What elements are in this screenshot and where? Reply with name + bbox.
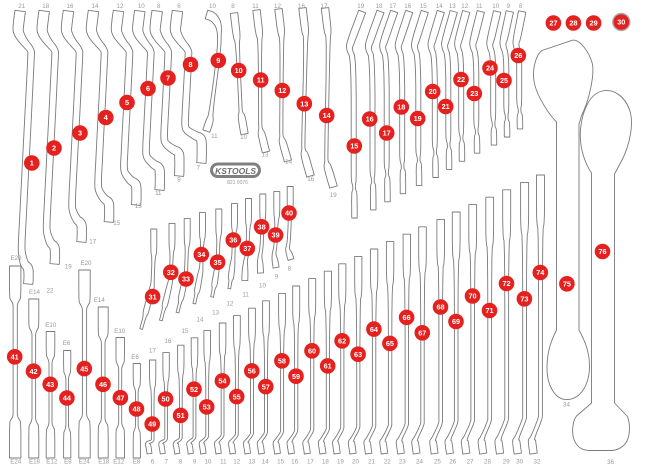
svg-text:19: 19: [65, 263, 72, 270]
svg-text:E6: E6: [131, 354, 139, 361]
svg-text:51: 51: [177, 411, 185, 420]
svg-text:58: 58: [278, 357, 286, 366]
svg-text:6: 6: [146, 84, 150, 93]
svg-text:53: 53: [203, 403, 211, 412]
svg-text:7: 7: [197, 164, 201, 171]
svg-text:12: 12: [278, 86, 286, 95]
svg-text:8: 8: [179, 458, 183, 465]
svg-text:28: 28: [569, 19, 577, 28]
svg-text:15: 15: [420, 3, 427, 10]
svg-text:19: 19: [337, 458, 344, 465]
svg-text:13: 13: [212, 310, 219, 317]
svg-text:25: 25: [500, 76, 508, 85]
svg-text:46: 46: [99, 380, 107, 389]
svg-text:8: 8: [519, 3, 523, 10]
svg-text:9: 9: [177, 177, 181, 184]
svg-text:10: 10: [492, 3, 499, 10]
svg-text:24: 24: [416, 458, 423, 465]
svg-text:8: 8: [288, 266, 292, 273]
svg-text:14: 14: [262, 458, 269, 465]
svg-text:40: 40: [285, 209, 293, 218]
svg-text:54: 54: [218, 377, 227, 386]
svg-text:49: 49: [148, 420, 156, 429]
svg-text:61: 61: [324, 362, 332, 371]
svg-text:1: 1: [30, 159, 34, 168]
svg-text:E12: E12: [46, 458, 58, 465]
svg-text:E8: E8: [133, 458, 141, 465]
svg-text:19: 19: [414, 114, 422, 123]
svg-text:68: 68: [436, 303, 444, 312]
svg-text:8: 8: [157, 3, 161, 10]
svg-text:71: 71: [485, 306, 493, 315]
svg-text:17: 17: [89, 238, 96, 245]
svg-text:821 0076: 821 0076: [227, 180, 248, 186]
svg-text:11: 11: [252, 3, 259, 10]
svg-text:24: 24: [486, 64, 495, 73]
svg-text:16: 16: [366, 115, 374, 124]
svg-text:14: 14: [92, 3, 99, 10]
svg-text:63: 63: [354, 350, 362, 359]
svg-text:19: 19: [330, 192, 337, 199]
svg-text:48: 48: [132, 405, 140, 414]
svg-text:16: 16: [165, 338, 172, 345]
svg-text:17: 17: [149, 348, 156, 355]
svg-text:10: 10: [205, 458, 212, 465]
svg-text:35: 35: [214, 258, 222, 267]
svg-text:KSTOOLS: KSTOOLS: [215, 166, 256, 176]
svg-text:13: 13: [248, 458, 255, 465]
svg-text:17: 17: [307, 458, 314, 465]
svg-text:62: 62: [338, 337, 346, 346]
svg-text:27: 27: [549, 19, 557, 28]
svg-text:14: 14: [285, 159, 292, 166]
svg-text:E24: E24: [79, 458, 91, 465]
svg-text:12: 12: [274, 3, 281, 10]
svg-text:7: 7: [166, 74, 170, 83]
svg-text:65: 65: [386, 339, 394, 348]
svg-text:36: 36: [607, 459, 614, 466]
svg-text:18: 18: [42, 3, 49, 10]
svg-text:20: 20: [429, 87, 437, 96]
svg-text:37: 37: [243, 244, 251, 253]
svg-text:20: 20: [352, 458, 359, 465]
svg-text:33: 33: [182, 275, 190, 284]
svg-text:26: 26: [514, 51, 522, 60]
svg-text:76: 76: [598, 247, 606, 256]
svg-text:11: 11: [242, 292, 249, 299]
svg-text:70: 70: [468, 292, 476, 301]
svg-text:73: 73: [520, 295, 528, 304]
svg-text:12: 12: [117, 3, 124, 10]
svg-text:17: 17: [321, 3, 328, 10]
svg-text:11: 11: [211, 133, 218, 140]
svg-text:16: 16: [404, 3, 411, 10]
svg-text:21: 21: [442, 102, 450, 111]
svg-text:69: 69: [452, 317, 460, 326]
svg-text:22: 22: [457, 75, 465, 84]
svg-text:31: 31: [149, 292, 157, 301]
svg-text:9: 9: [193, 458, 197, 465]
svg-text:10: 10: [209, 3, 216, 10]
svg-text:66: 66: [403, 313, 411, 322]
svg-text:55: 55: [233, 392, 241, 401]
svg-text:3: 3: [78, 129, 82, 138]
svg-text:45: 45: [80, 364, 88, 373]
svg-text:E10: E10: [45, 322, 57, 329]
svg-text:E10: E10: [114, 328, 126, 335]
svg-text:27: 27: [467, 458, 474, 465]
svg-text:64: 64: [370, 325, 379, 334]
svg-text:21: 21: [368, 458, 375, 465]
svg-text:25: 25: [434, 458, 441, 465]
svg-text:11: 11: [476, 3, 483, 10]
svg-text:38: 38: [258, 223, 266, 232]
svg-text:26: 26: [449, 458, 456, 465]
svg-text:57: 57: [262, 382, 270, 391]
svg-text:18: 18: [397, 103, 405, 112]
svg-text:30: 30: [617, 18, 625, 27]
svg-text:E20: E20: [10, 255, 22, 262]
svg-text:13: 13: [262, 151, 269, 158]
svg-text:10: 10: [259, 283, 266, 290]
svg-text:6: 6: [151, 458, 155, 465]
svg-text:15: 15: [182, 328, 189, 335]
svg-text:18: 18: [322, 458, 329, 465]
svg-text:16: 16: [307, 176, 314, 183]
svg-text:18: 18: [376, 3, 383, 10]
svg-text:56: 56: [248, 367, 256, 376]
svg-text:16: 16: [67, 3, 74, 10]
svg-text:72: 72: [502, 279, 510, 288]
svg-text:16: 16: [298, 3, 305, 10]
svg-text:22: 22: [384, 458, 391, 465]
svg-text:E18: E18: [98, 458, 110, 465]
svg-text:23: 23: [470, 89, 478, 98]
svg-text:43: 43: [46, 380, 54, 389]
svg-text:17: 17: [389, 3, 396, 10]
svg-text:12: 12: [461, 3, 468, 10]
svg-text:52: 52: [190, 385, 198, 394]
svg-text:14: 14: [323, 111, 332, 120]
svg-text:10: 10: [240, 134, 247, 141]
svg-text:E6: E6: [63, 340, 71, 347]
svg-text:8: 8: [188, 60, 192, 69]
svg-text:39: 39: [272, 231, 280, 240]
svg-text:59: 59: [292, 372, 300, 381]
svg-text:41: 41: [11, 353, 19, 362]
svg-text:E18: E18: [29, 458, 41, 465]
svg-text:60: 60: [308, 347, 316, 356]
svg-text:8: 8: [231, 3, 235, 10]
svg-text:13: 13: [300, 99, 308, 108]
svg-text:13: 13: [449, 3, 456, 10]
svg-text:36: 36: [229, 236, 237, 245]
svg-text:16: 16: [291, 458, 298, 465]
svg-text:9: 9: [216, 56, 220, 65]
svg-text:E14: E14: [29, 289, 41, 296]
svg-text:11: 11: [257, 76, 265, 85]
svg-text:47: 47: [116, 393, 124, 402]
svg-text:32: 32: [534, 458, 541, 465]
svg-text:14: 14: [436, 3, 443, 10]
svg-text:9: 9: [275, 274, 279, 281]
svg-text:74: 74: [536, 268, 545, 277]
svg-text:7: 7: [164, 458, 168, 465]
svg-text:9: 9: [507, 3, 511, 10]
svg-text:19: 19: [357, 3, 364, 10]
svg-text:10: 10: [138, 3, 145, 10]
svg-text:21: 21: [18, 3, 25, 10]
svg-text:29: 29: [503, 458, 510, 465]
svg-text:32: 32: [167, 268, 175, 277]
svg-text:E20: E20: [80, 260, 92, 267]
svg-text:34: 34: [197, 250, 206, 259]
svg-text:E8: E8: [64, 458, 72, 465]
svg-text:29: 29: [590, 19, 598, 28]
svg-text:10: 10: [235, 66, 243, 75]
svg-text:14: 14: [197, 317, 204, 324]
svg-text:22: 22: [47, 288, 54, 295]
svg-text:75: 75: [563, 280, 571, 289]
svg-text:17: 17: [383, 129, 391, 138]
svg-text:5: 5: [125, 98, 129, 107]
svg-text:15: 15: [350, 142, 358, 151]
svg-text:6: 6: [177, 3, 181, 10]
svg-text:E12: E12: [113, 458, 125, 465]
svg-text:34: 34: [563, 402, 570, 409]
svg-text:67: 67: [418, 329, 426, 338]
svg-text:44: 44: [63, 394, 72, 403]
svg-text:11: 11: [155, 190, 162, 197]
svg-text:23: 23: [399, 458, 406, 465]
svg-text:50: 50: [162, 395, 170, 404]
svg-text:42: 42: [29, 367, 37, 376]
svg-text:13: 13: [135, 203, 142, 210]
svg-text:15: 15: [113, 220, 120, 227]
svg-text:11: 11: [220, 458, 227, 465]
svg-text:28: 28: [484, 458, 491, 465]
svg-text:E14: E14: [94, 297, 106, 304]
svg-text:12: 12: [233, 458, 240, 465]
svg-text:12: 12: [227, 301, 234, 308]
svg-text:E24: E24: [10, 458, 22, 465]
svg-text:30: 30: [516, 458, 523, 465]
svg-text:2: 2: [52, 144, 56, 153]
svg-text:15: 15: [277, 458, 284, 465]
